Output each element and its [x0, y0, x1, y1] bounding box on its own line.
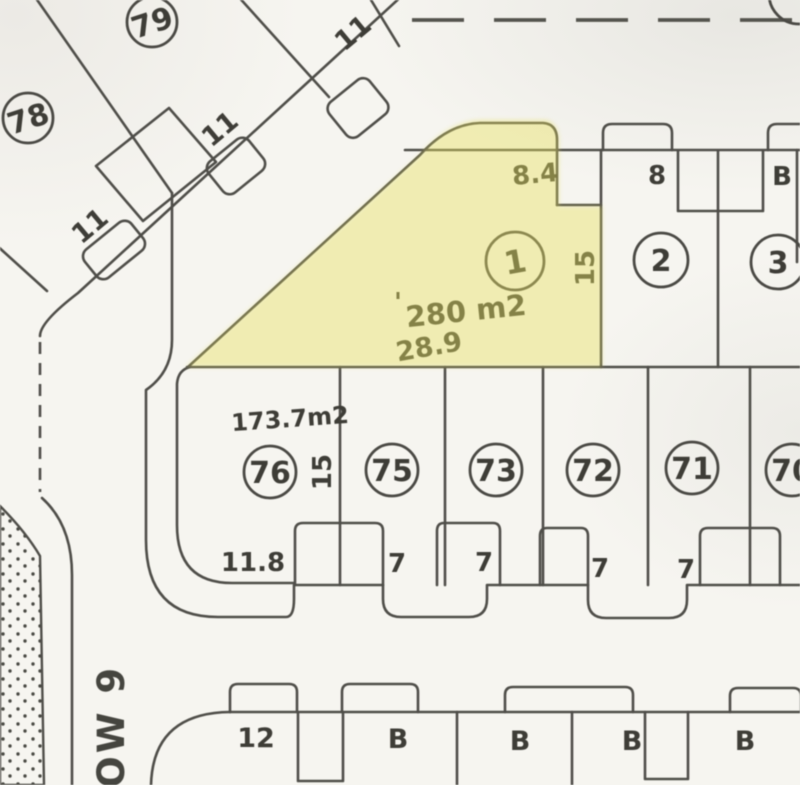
road-name-label: ROW 9	[90, 665, 133, 785]
lot2-front-dimension: 8	[648, 161, 666, 191]
stippled-reserve-area	[0, 506, 44, 785]
lot-72-number: 72	[572, 454, 614, 489]
small-parcel	[96, 108, 216, 221]
lot-71-number: 71	[671, 452, 713, 487]
stair-notch	[298, 712, 343, 781]
front-dimension: 7	[475, 548, 493, 578]
parcel-edge	[0, 243, 47, 291]
frontage-dim-label: 11	[66, 202, 115, 250]
front-dimension: 7	[677, 555, 695, 585]
stair-notch	[645, 712, 688, 779]
lot-b-label: B	[735, 726, 756, 757]
lot2-entry-bump	[603, 124, 672, 150]
frontage-dim-label: 11	[329, 9, 378, 57]
lot1-highlight-overlay	[186, 120, 602, 367]
bottom-lot-row: 12 B B B B	[151, 684, 800, 785]
row9-road: ROW 9	[0, 498, 133, 785]
road-left-edge	[42, 498, 72, 785]
lot-70-number: 70	[771, 454, 800, 489]
lot-b-label: B	[622, 726, 643, 757]
plot-map: 79 78 11 11 11 ROW 9 1 2 3 8.4 15 ' 280 …	[0, 0, 800, 785]
lot-b-label: B	[510, 726, 531, 757]
entry-bump	[505, 687, 633, 712]
lot-12-label: 12	[237, 723, 275, 754]
corner-curve	[151, 712, 230, 785]
lot-73-number: 73	[475, 454, 517, 489]
lot76-side-dimension: 15	[308, 454, 338, 490]
entry-bay	[324, 75, 392, 142]
front-dimension: 11.8	[221, 548, 285, 578]
lot-b-label: B	[388, 724, 409, 755]
shared-stair-notch	[678, 151, 763, 211]
lot-b-entry-bump	[768, 124, 800, 150]
front-dimension: 7	[388, 549, 406, 579]
entry-bump	[230, 684, 297, 712]
parcel-edge	[236, 0, 329, 97]
boundary-tick	[371, 0, 399, 46]
lot-2-number: 2	[651, 244, 672, 279]
entry-bump	[342, 684, 418, 712]
front-dimension: 7	[591, 554, 609, 584]
lot-76-number: 76	[249, 456, 291, 491]
lot-75-number: 75	[371, 454, 413, 489]
building-footprint	[700, 528, 780, 585]
building-footprint	[540, 528, 588, 585]
right-edge-label: B	[772, 162, 792, 192]
lot-3-number: 3	[768, 246, 789, 281]
lot76-area-label: 173.7m2	[230, 401, 349, 437]
north-boundary	[371, 0, 800, 46]
entry-bump	[730, 688, 800, 712]
cadastral-map-canvas: 79 78 11 11 11 ROW 9 1 2 3 8.4 15 ' 280 …	[0, 0, 800, 785]
